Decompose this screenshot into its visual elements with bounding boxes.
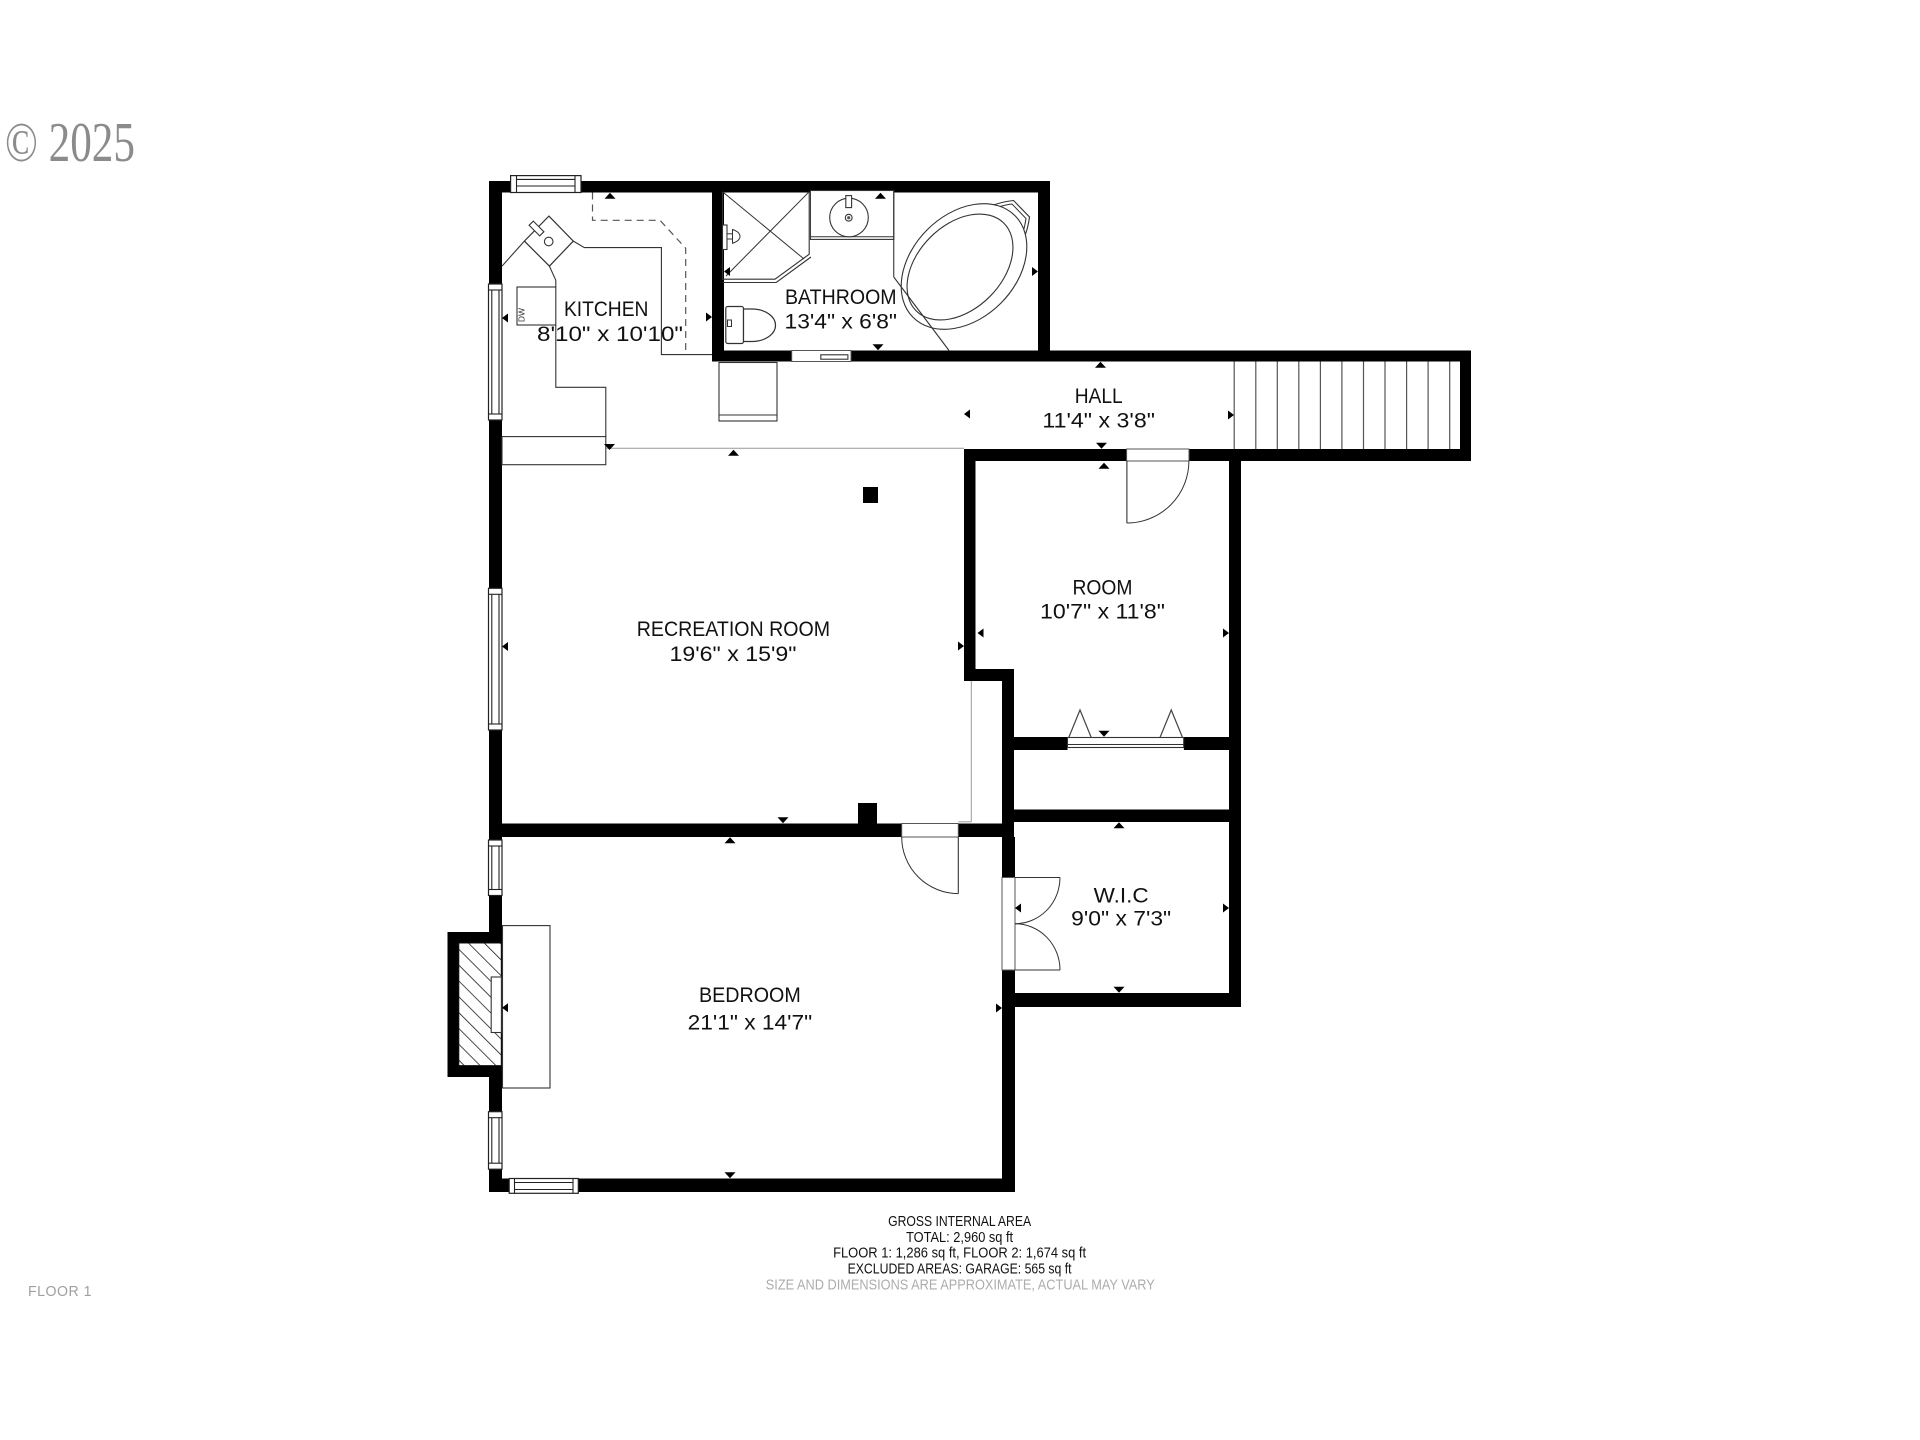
svg-text:ROOM: ROOM: [1073, 576, 1133, 600]
svg-text:10'7" x 11'8": 10'7" x 11'8": [1040, 600, 1165, 624]
svg-text:HALL: HALL: [1075, 384, 1123, 408]
svg-text:FLOOR 1: FLOOR 1: [28, 1284, 92, 1300]
svg-text:9'0" x 7'3": 9'0" x 7'3": [1071, 907, 1171, 931]
svg-text:KITCHEN: KITCHEN: [564, 297, 649, 321]
svg-text:13'4" x 6'8": 13'4" x 6'8": [785, 310, 898, 334]
svg-text:SIZE AND DIMENSIONS ARE APPROX: SIZE AND DIMENSIONS ARE APPROXIMATE, ACT…: [766, 1278, 1155, 1294]
svg-text:GROSS INTERNAL AREA: GROSS INTERNAL AREA: [888, 1214, 1031, 1230]
svg-text:8'10" x 10'10": 8'10" x 10'10": [537, 322, 683, 346]
svg-text:FLOOR 1: 1,286 sq ft, FLOOR 2:: FLOOR 1: 1,286 sq ft, FLOOR 2: 1,674 sq …: [833, 1246, 1086, 1262]
svg-text:11'4" x 3'8": 11'4" x 3'8": [1042, 409, 1155, 433]
svg-text:TOTAL: 2,960 sq ft: TOTAL: 2,960 sq ft: [906, 1230, 1013, 1246]
svg-text:© 2025: © 2025: [5, 112, 135, 174]
svg-text:BATHROOM: BATHROOM: [785, 285, 897, 309]
svg-text:BEDROOM: BEDROOM: [699, 983, 801, 1007]
svg-text:21'1" x 14'7": 21'1" x 14'7": [688, 1011, 813, 1035]
svg-text:RECREATION ROOM: RECREATION ROOM: [637, 617, 830, 641]
svg-text:19'6" x 15'9": 19'6" x 15'9": [670, 642, 797, 666]
svg-text:W.I.C: W.I.C: [1094, 884, 1149, 908]
svg-text:EXCLUDED AREAS: GARAGE: 565 sq: EXCLUDED AREAS: GARAGE: 565 sq ft: [848, 1262, 1072, 1278]
svg-text:DW: DW: [517, 308, 527, 322]
